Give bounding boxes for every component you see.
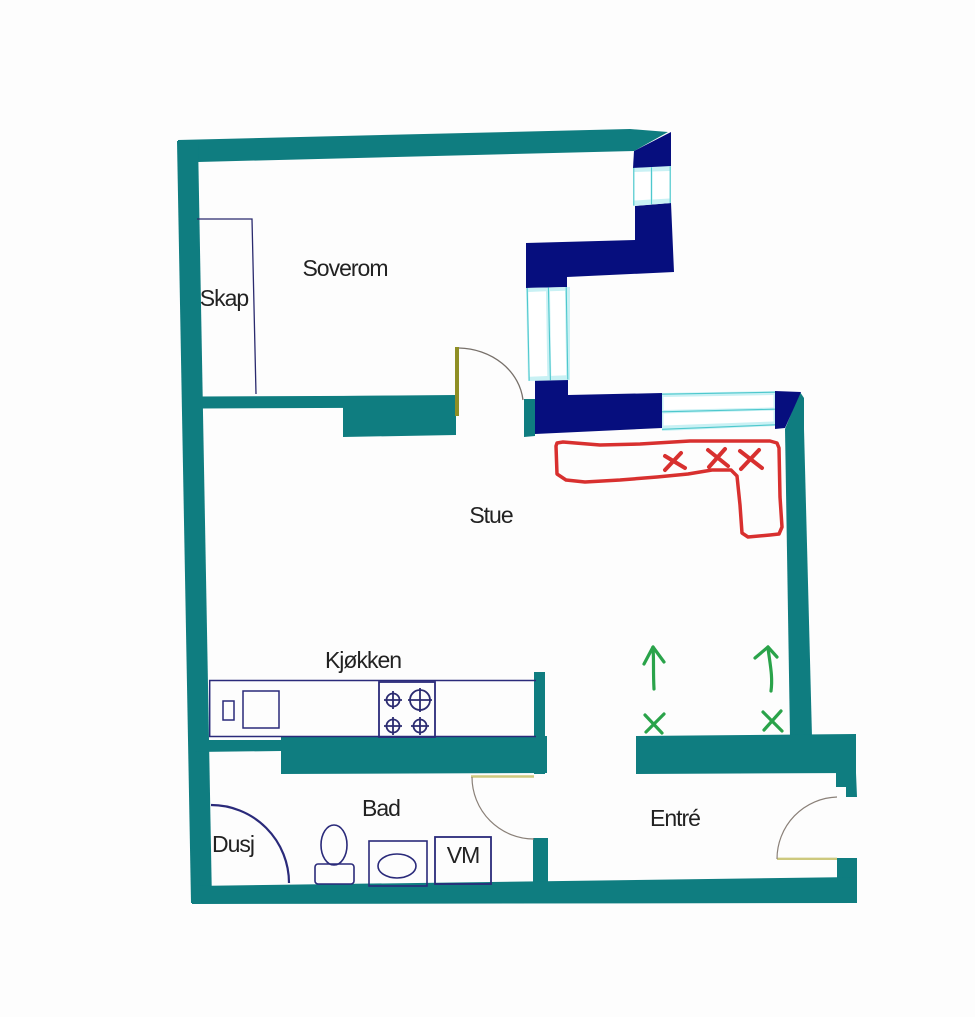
- svg-text:Soverom: Soverom: [302, 255, 387, 281]
- svg-text:Bad: Bad: [362, 795, 400, 821]
- svg-text:Stue: Stue: [469, 502, 513, 528]
- svg-text:Dusj: Dusj: [212, 831, 254, 857]
- svg-text:Entré: Entré: [650, 805, 700, 831]
- svg-text:Skap: Skap: [200, 285, 249, 311]
- svg-text:VM: VM: [447, 842, 480, 868]
- svg-text:Kjøkken: Kjøkken: [325, 647, 401, 673]
